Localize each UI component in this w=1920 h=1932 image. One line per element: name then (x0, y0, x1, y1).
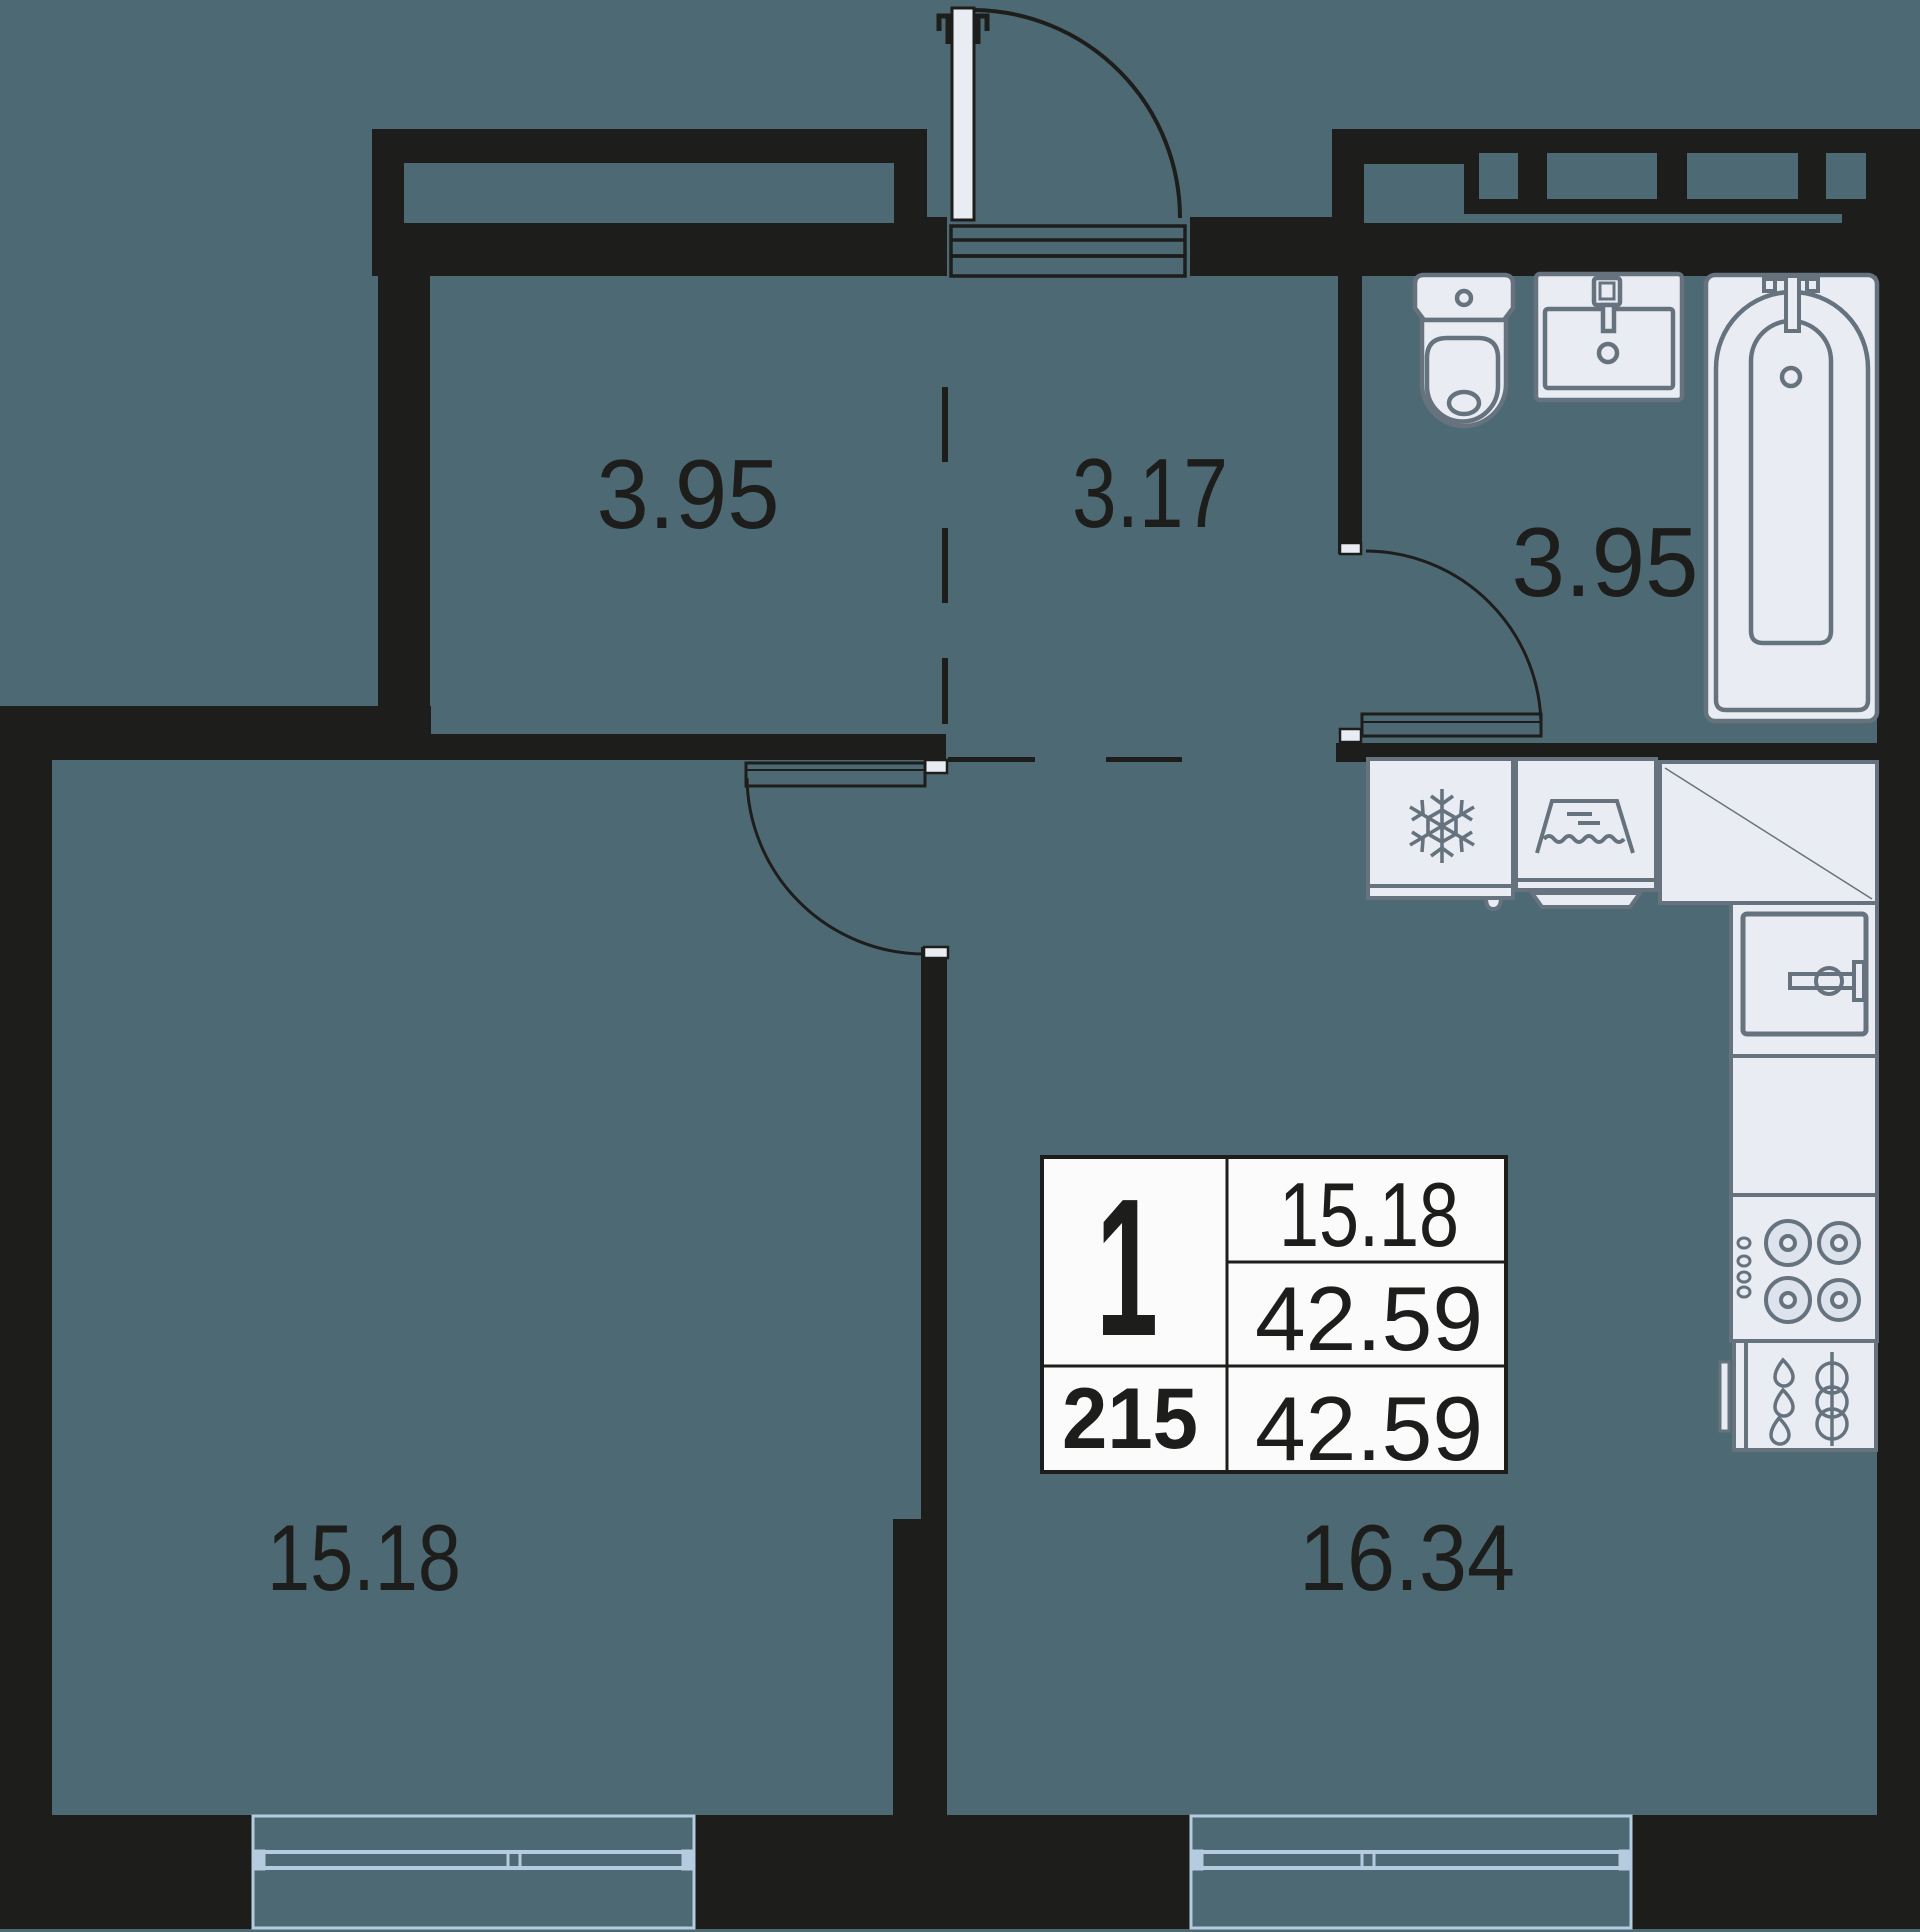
svg-text:16.34: 16.34 (1299, 1505, 1515, 1610)
svg-text:15.18: 15.18 (1279, 1165, 1459, 1266)
svg-text:215: 215 (1062, 1371, 1198, 1467)
svg-text:15.18: 15.18 (267, 1505, 461, 1610)
svg-text:3.95: 3.95 (597, 439, 780, 549)
svg-text:3.17: 3.17 (1072, 438, 1228, 548)
svg-text:1: 1 (1096, 1158, 1158, 1377)
svg-text:3.95: 3.95 (1512, 507, 1699, 617)
svg-text:42.59: 42.59 (1255, 1379, 1483, 1480)
svg-text:42.59: 42.59 (1255, 1269, 1483, 1370)
